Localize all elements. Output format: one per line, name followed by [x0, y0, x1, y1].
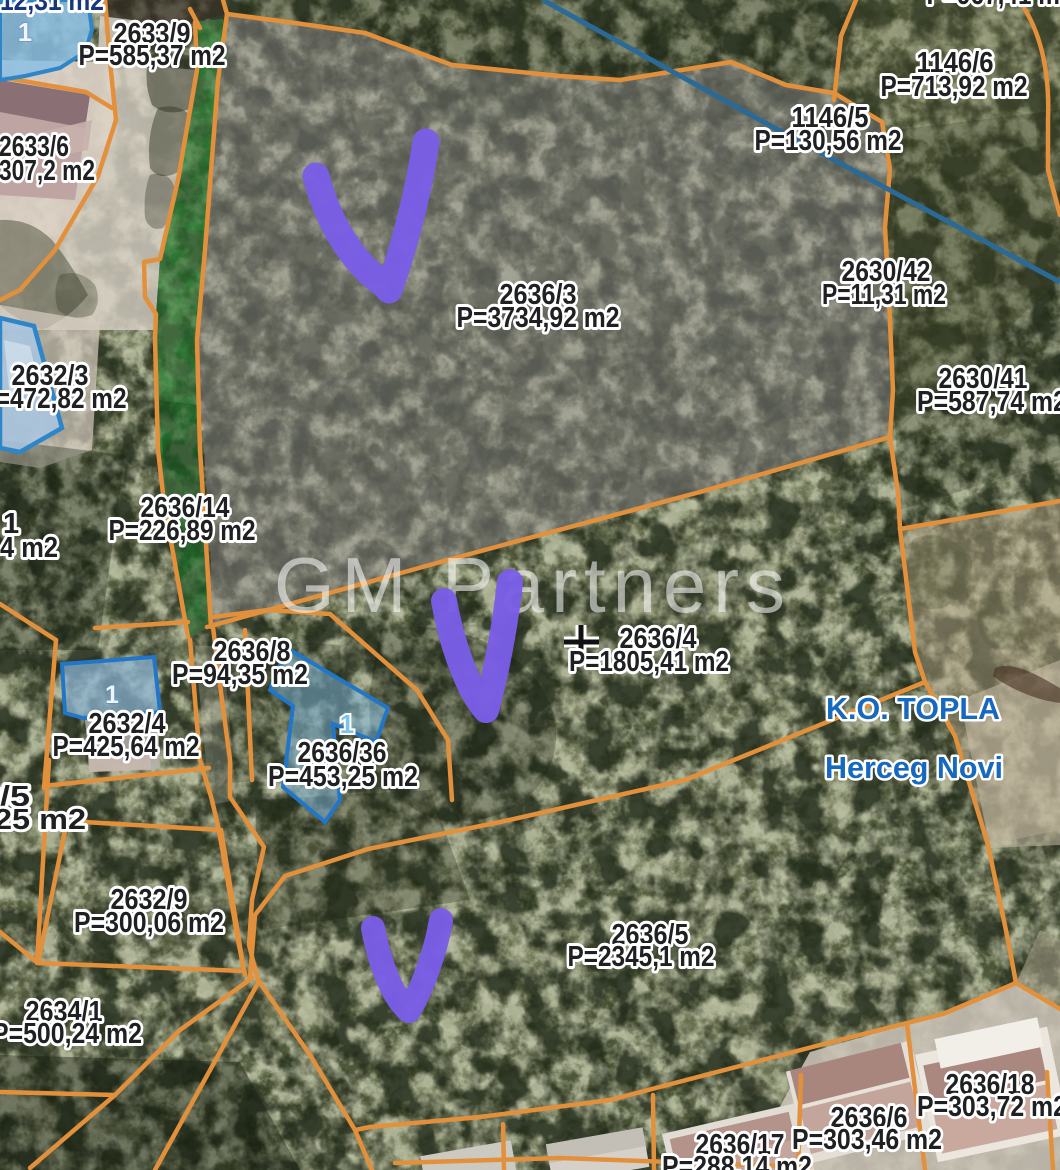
svg-text:P=585,37 m2: P=585,37 m2: [79, 40, 226, 72]
svg-text:P=2345,1 m2: P=2345,1 m2: [568, 941, 715, 973]
svg-text:P=11,31 m2: P=11,31 m2: [822, 279, 946, 311]
svg-text:P=1805,41 m2: P=1805,41 m2: [569, 646, 729, 678]
svg-text:P=303,72 m2: P=303,72 m2: [917, 1091, 1060, 1123]
svg-text:1: 1: [18, 17, 32, 47]
svg-text:1: 1: [105, 681, 119, 709]
svg-text:1: 1: [340, 709, 354, 739]
svg-text:4 m2: 4 m2: [0, 532, 58, 564]
svg-text:25 m2: 25 m2: [0, 804, 86, 836]
svg-text:307,2 m2: 307,2 m2: [0, 155, 95, 187]
svg-text:P=713,92 m2: P=713,92 m2: [881, 71, 1028, 103]
svg-text:P=453,25 m2: P=453,25 m2: [268, 761, 418, 793]
svg-text:P=288,14 m2: P=288,14 m2: [662, 1151, 812, 1170]
svg-text:P=226,89 m2: P=226,89 m2: [109, 515, 256, 547]
svg-text:P=303,46 m2: P=303,46 m2: [792, 1124, 942, 1156]
svg-text:P=472,82 m2: P=472,82 m2: [0, 383, 127, 415]
svg-text:P=967,41 m2: P=967,41 m2: [927, 0, 1060, 11]
svg-text:P=94,35 m2: P=94,35 m2: [172, 659, 308, 691]
svg-text:P=300,06 m2: P=300,06 m2: [74, 907, 224, 939]
svg-text:12,31 m2: 12,31 m2: [0, 0, 104, 16]
svg-text:K.O. TOPLA: K.O. TOPLA: [826, 691, 1000, 726]
svg-text:P=3734,92 m2: P=3734,92 m2: [457, 302, 620, 334]
svg-text:P=500,24 m2: P=500,24 m2: [0, 1018, 142, 1050]
svg-text:P=130,56 m2: P=130,56 m2: [755, 125, 902, 157]
svg-text:Herceg Novi: Herceg Novi: [825, 750, 1003, 785]
svg-text:GM Partners: GM Partners: [274, 541, 790, 629]
svg-text:P=587,74 m2: P=587,74 m2: [917, 386, 1060, 418]
svg-text:P=425,64 m2: P=425,64 m2: [53, 731, 200, 763]
